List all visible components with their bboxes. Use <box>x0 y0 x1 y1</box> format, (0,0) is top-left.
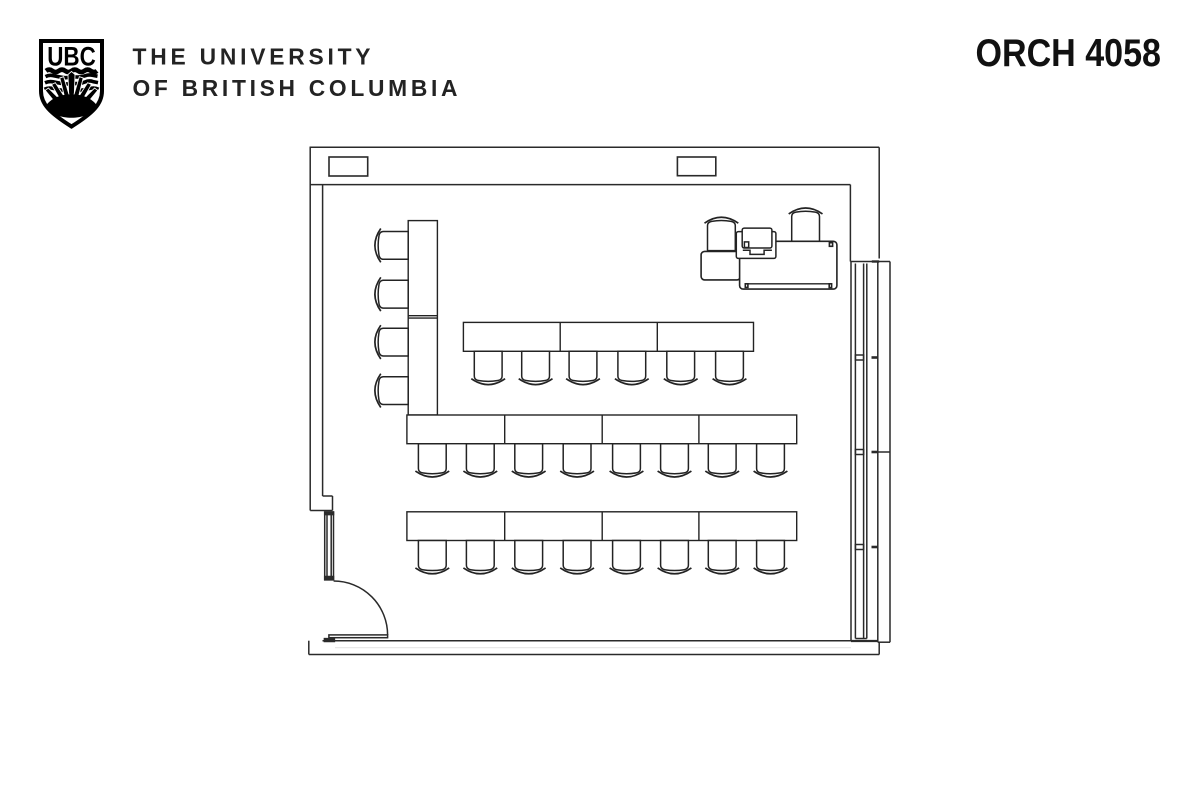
svg-text:ORCH 4058: ORCH 4058 <box>976 32 1162 75</box>
svg-text:UBC: UBC <box>47 41 96 71</box>
